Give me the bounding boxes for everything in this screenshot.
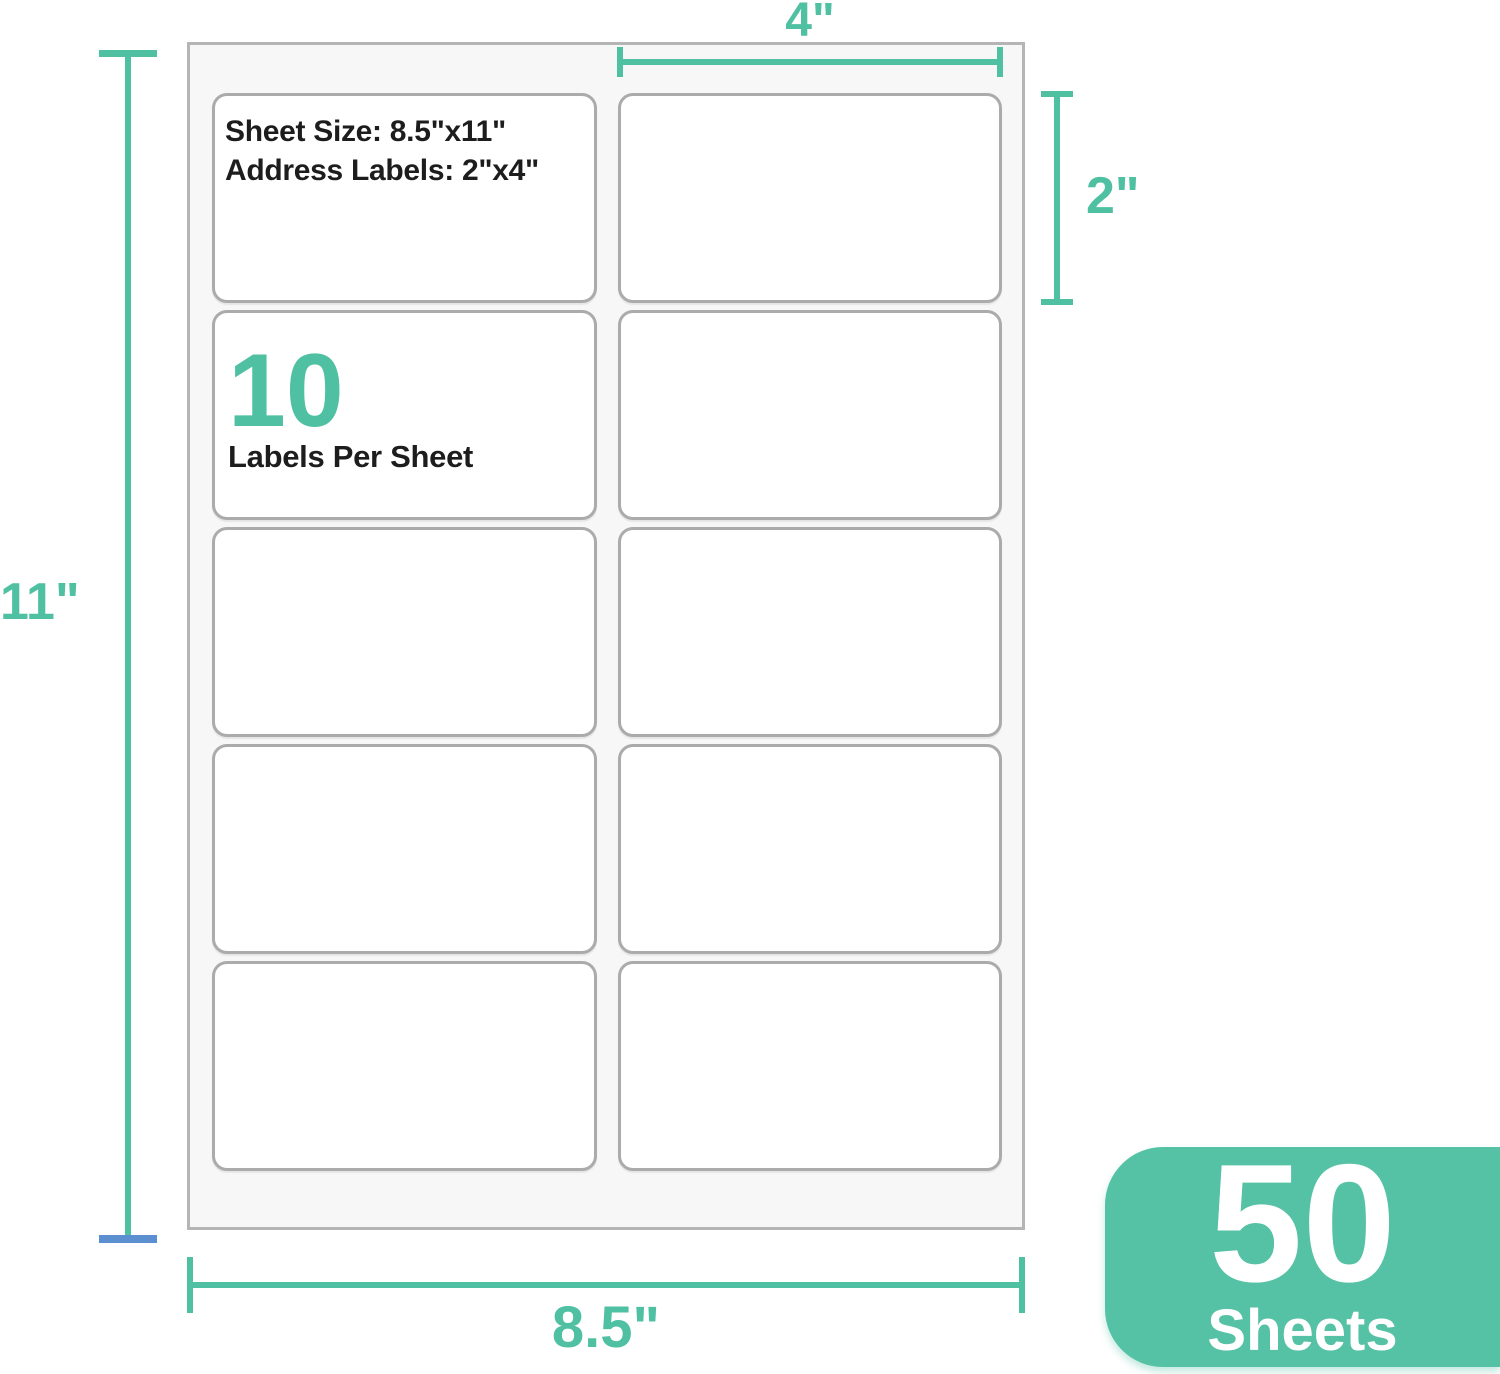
dimension-line bbox=[1054, 97, 1060, 299]
label-size-line: Address Labels: 2"x4" bbox=[225, 151, 586, 190]
label-cell bbox=[618, 310, 1003, 520]
sheet-count-unit: Sheets bbox=[1207, 1302, 1397, 1360]
labels-per-sheet-caption: Labels Per Sheet bbox=[215, 439, 594, 475]
label-width-dimension-line bbox=[617, 47, 1003, 77]
label-sheet-infographic: Sheet Size: 8.5"x11" Address Labels: 2"x… bbox=[0, 0, 1500, 1374]
label-height-dimension-text: 2" bbox=[1086, 166, 1140, 226]
label-cell bbox=[212, 961, 597, 1171]
dimension-line bbox=[193, 1282, 1019, 1288]
sheet-count-number: 50 bbox=[1209, 1156, 1396, 1290]
label-cell bbox=[618, 93, 1003, 303]
label-cell bbox=[618, 961, 1003, 1171]
sheet-height-dimension-line bbox=[99, 50, 157, 1243]
label-cell bbox=[212, 744, 597, 954]
label-sheet: Sheet Size: 8.5"x11" Address Labels: 2"x… bbox=[187, 42, 1025, 1230]
label-height-dimension-line bbox=[1041, 91, 1073, 305]
label-cell-info: Sheet Size: 8.5"x11" Address Labels: 2"x… bbox=[212, 93, 597, 303]
label-cell bbox=[618, 527, 1003, 737]
labels-grid: Sheet Size: 8.5"x11" Address Labels: 2"x… bbox=[212, 93, 1002, 1171]
sheet-count-badge: 50 Sheets bbox=[1105, 1147, 1500, 1367]
sheet-height-dimension-text: 11" bbox=[0, 572, 80, 632]
label-cell-count: 10 Labels Per Sheet bbox=[212, 310, 597, 520]
label-width-dimension-text: 4" bbox=[617, 0, 1003, 48]
labels-per-sheet-number: 10 bbox=[215, 313, 594, 443]
label-cell bbox=[212, 527, 597, 737]
sheet-size-line: Sheet Size: 8.5"x11" bbox=[225, 112, 586, 151]
dimension-line bbox=[125, 57, 131, 1235]
dimension-line bbox=[623, 59, 997, 65]
label-cell bbox=[618, 744, 1003, 954]
sheet-size-text: Sheet Size: 8.5"x11" Address Labels: 2"x… bbox=[215, 96, 594, 190]
sheet-width-dimension-text: 8.5" bbox=[187, 1294, 1025, 1361]
